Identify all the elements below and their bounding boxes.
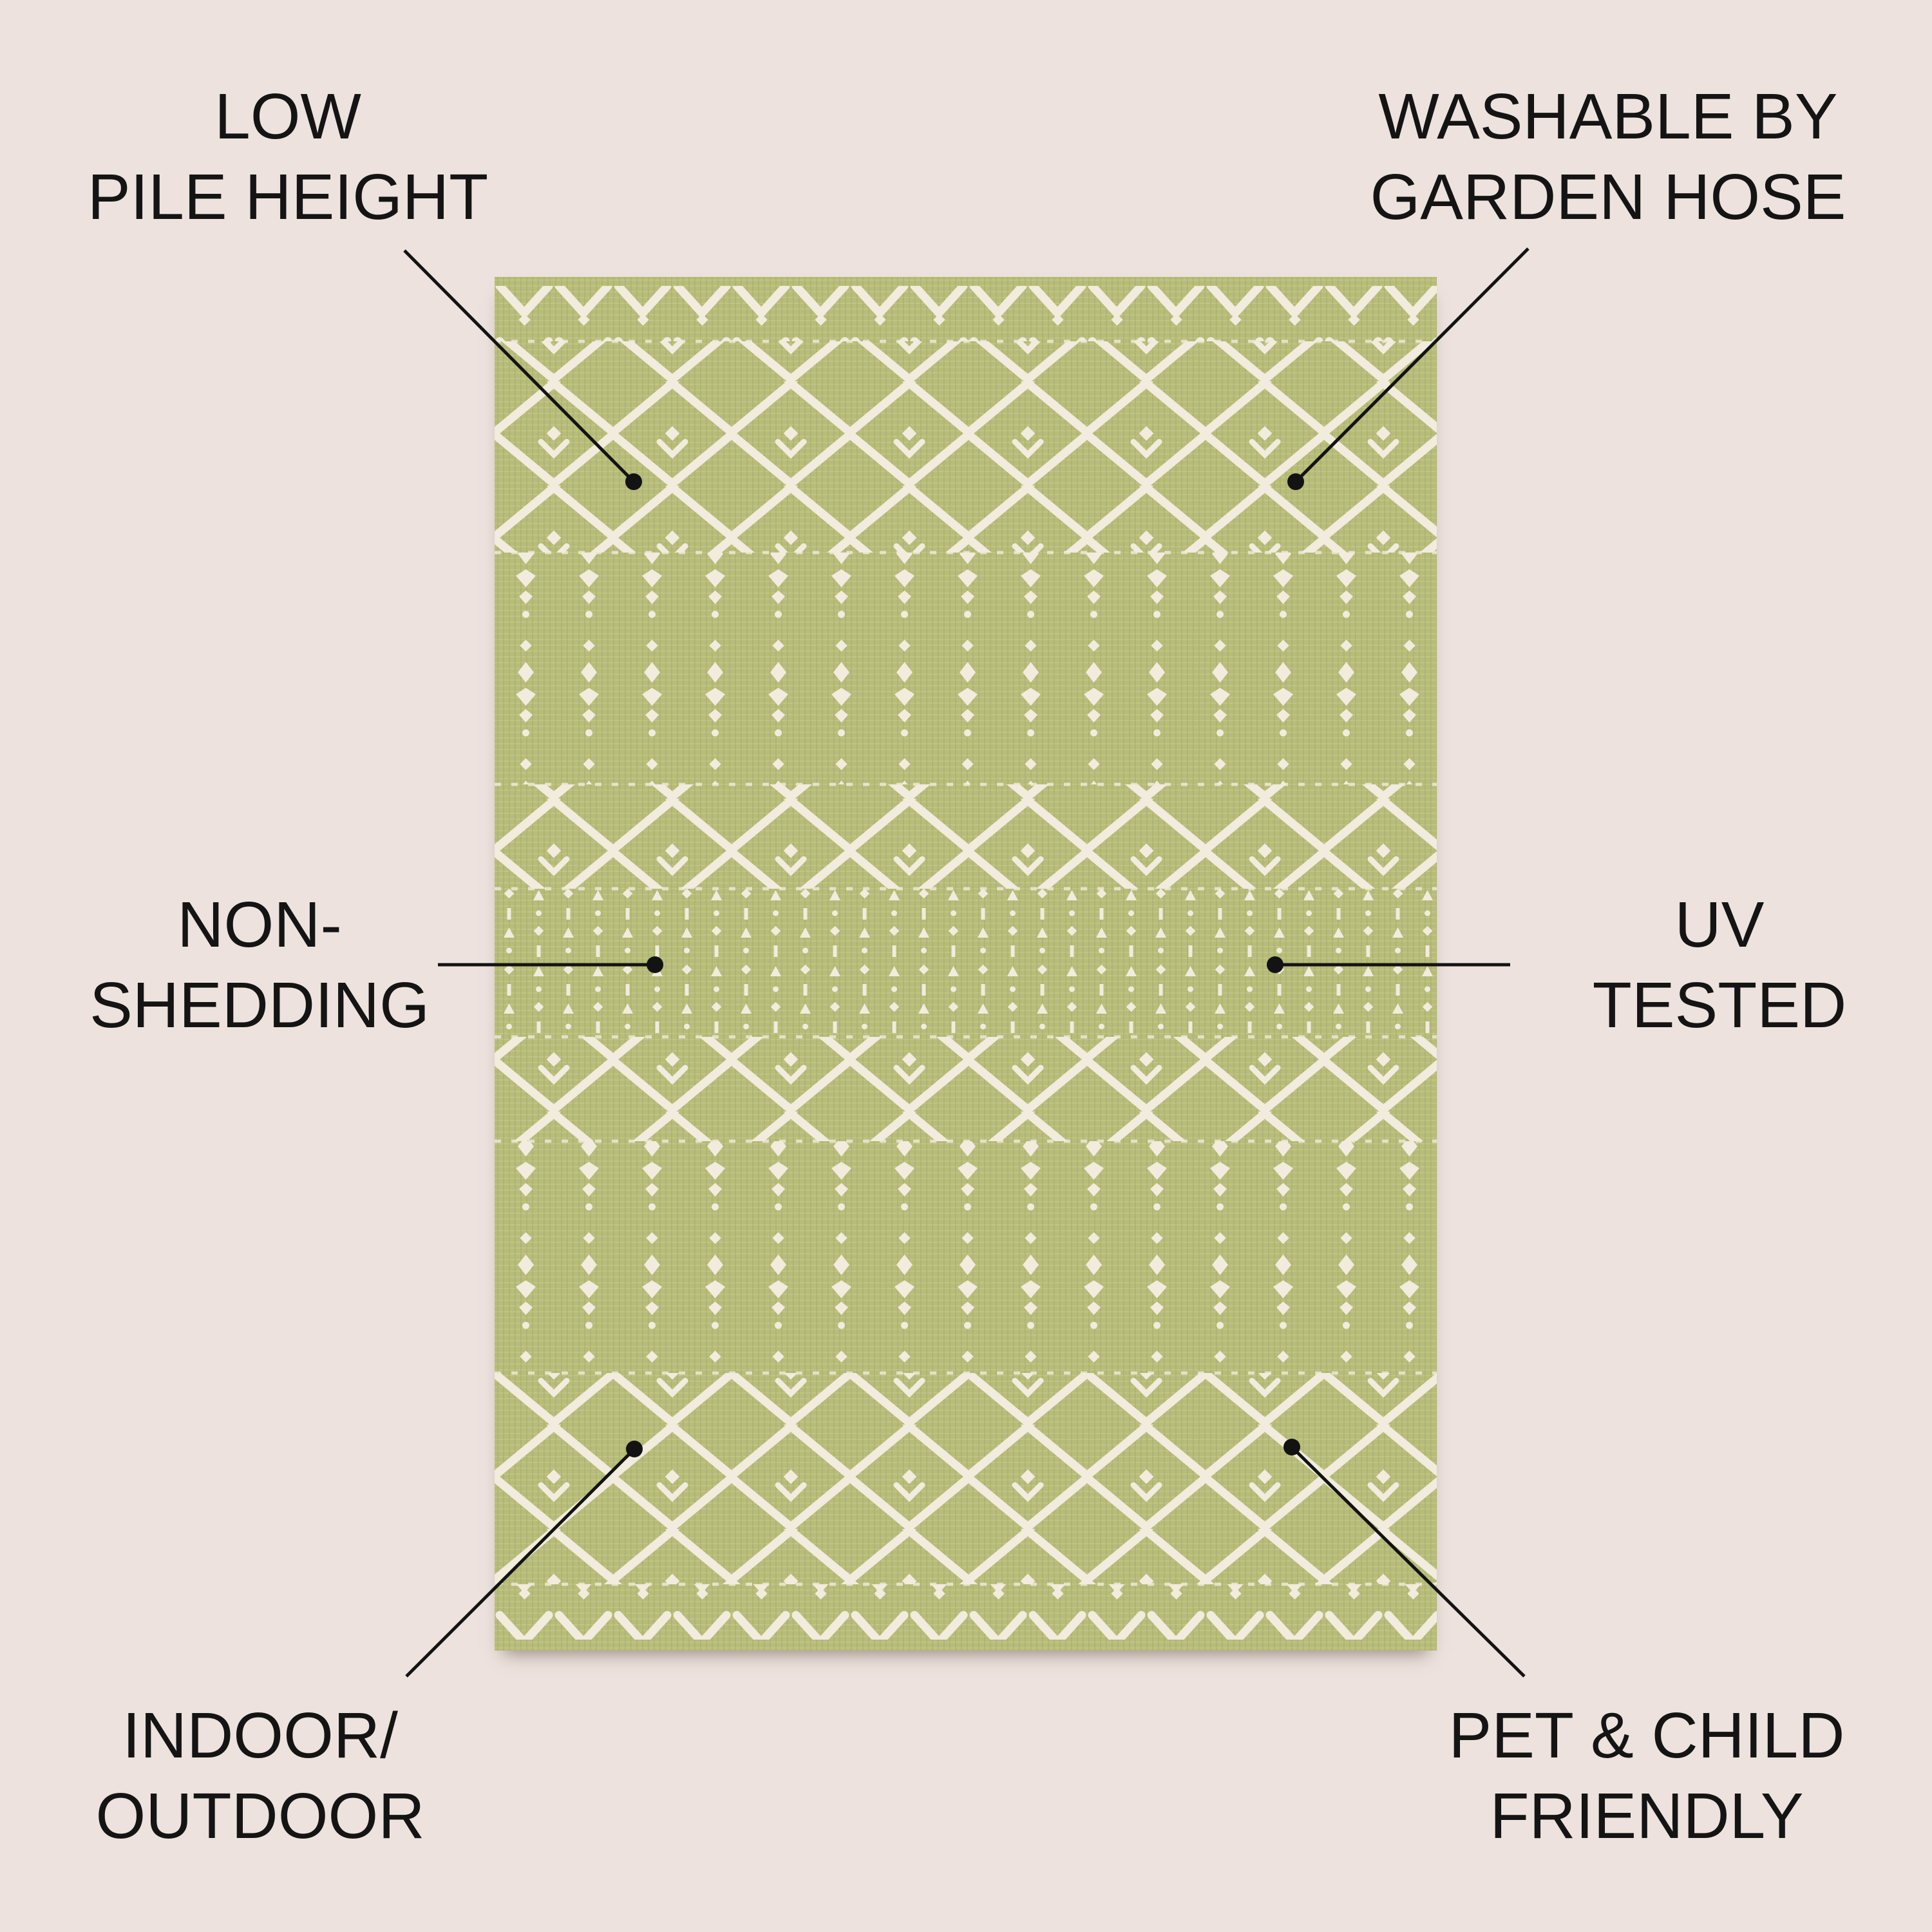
infographic-canvas: LOW PILE HEIGHT WASHABLE BY GARDEN HOSE … xyxy=(0,0,1932,1932)
callout-label-pet-child-friendly: PET & CHILD FRIENDLY xyxy=(1449,1696,1845,1857)
callout-label-non-shedding: NON- SHEDDING xyxy=(90,885,430,1046)
callout-text-line: PET & CHILD xyxy=(1449,1696,1845,1776)
callout-label-low-pile-height: LOW PILE HEIGHT xyxy=(88,77,488,238)
callout-label-washable-by-garden-hose: WASHABLE BY GARDEN HOSE xyxy=(1370,77,1846,238)
callout-text-line: NON- xyxy=(90,885,430,965)
callout-text-line: INDOOR/ xyxy=(95,1696,424,1776)
callout-text-line: PILE HEIGHT xyxy=(88,157,488,238)
callout-text-line: FRIENDLY xyxy=(1449,1776,1845,1857)
rug-image xyxy=(495,277,1437,1651)
callout-text-line: WASHABLE BY xyxy=(1370,77,1846,157)
callout-text-line: GARDEN HOSE xyxy=(1370,157,1846,238)
callout-text-line: OUTDOOR xyxy=(95,1776,424,1857)
callout-text-line: SHEDDING xyxy=(90,965,430,1046)
callout-text-line: TESTED xyxy=(1593,965,1846,1046)
callout-text-line: LOW xyxy=(88,77,488,157)
callout-label-indoor-outdoor: INDOOR/ OUTDOOR xyxy=(95,1696,424,1857)
callout-text-line: UV xyxy=(1593,885,1846,965)
callout-label-uv-tested: UV TESTED xyxy=(1593,885,1846,1046)
